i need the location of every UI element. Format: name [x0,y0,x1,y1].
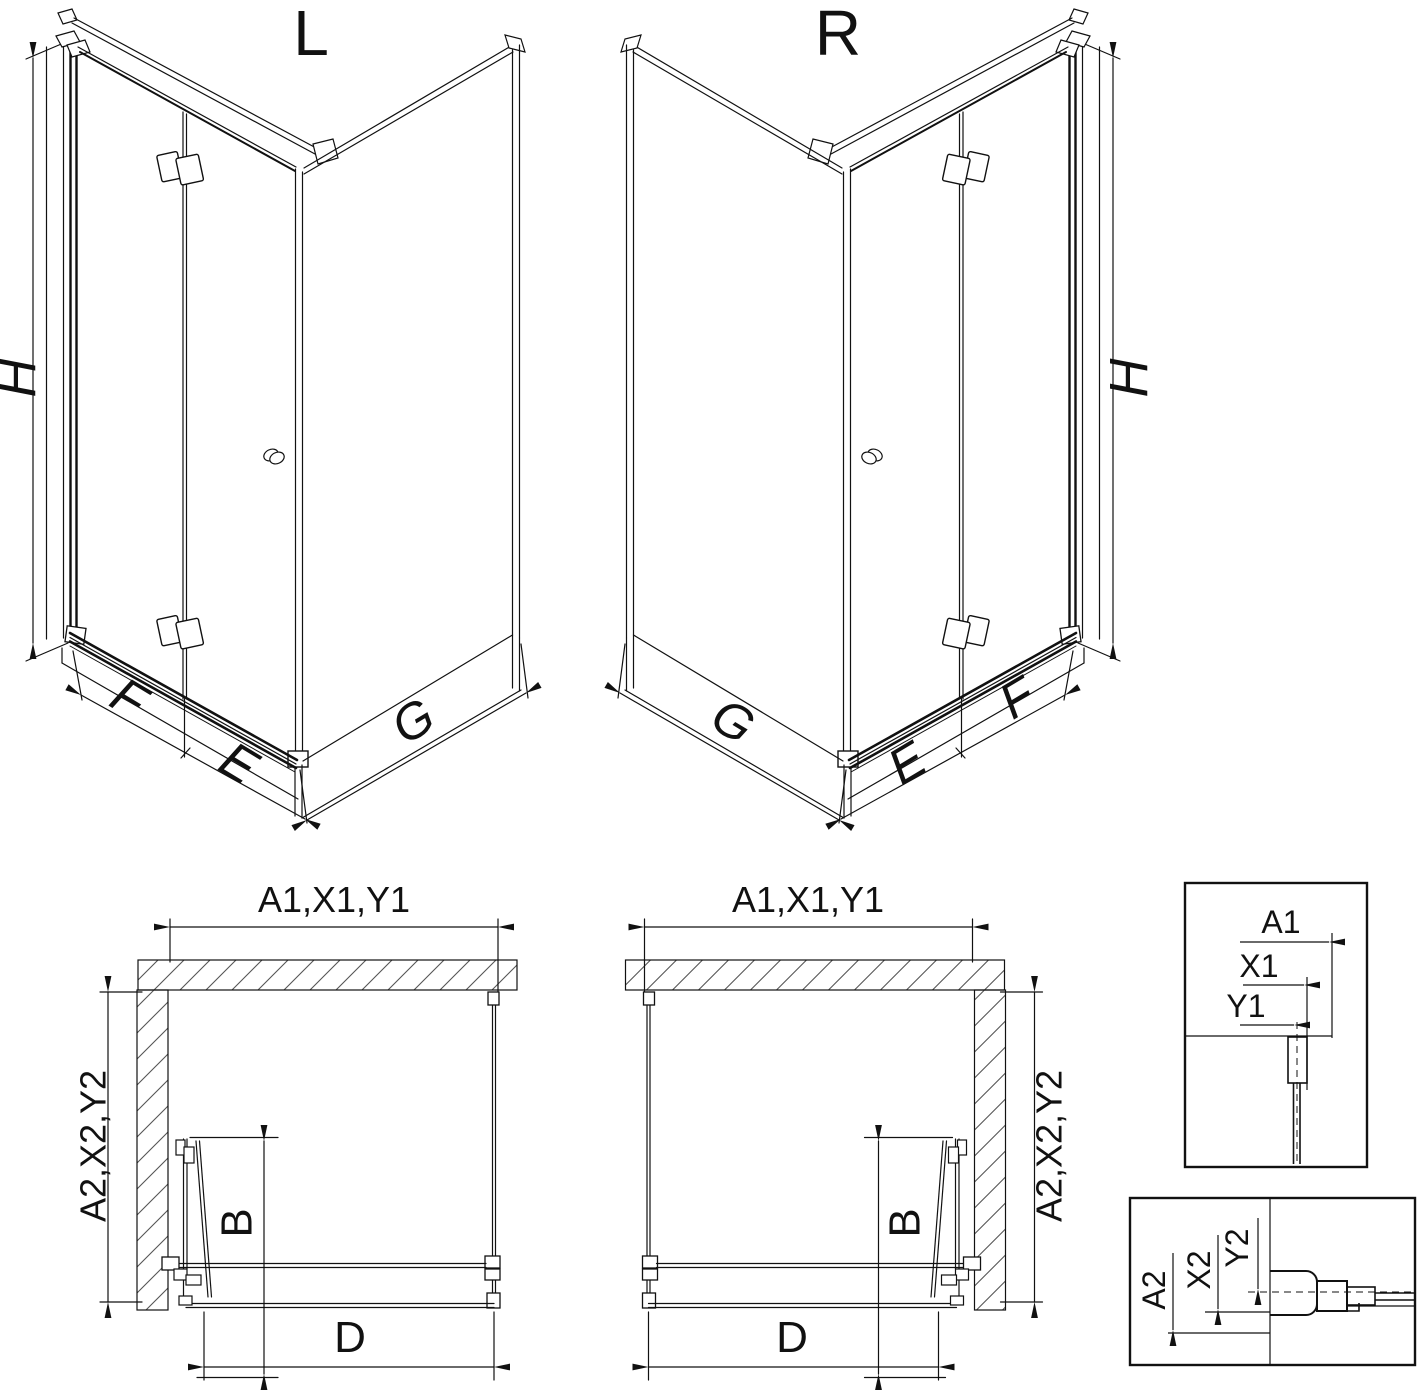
detail-label-y2: Y2 [1219,1228,1255,1267]
shower-enclosure-diagram: L H F E G R H F E G A1,X1,Y1 A2,X2,Y2 B … [0,0,1426,1397]
dim-label-depth-plan-left: A2,X2,Y2 [73,1070,114,1222]
detail-label-x2: X2 [1181,1250,1217,1289]
page-background [0,0,1426,1397]
dim-label-opening-plan-right: D [776,1313,808,1362]
detail-label-x1: X1 [1239,948,1278,984]
dim-label-opening-plan-left: D [334,1313,366,1362]
detail-label-a1: A1 [1261,904,1300,940]
detail-label-y1: Y1 [1226,988,1265,1024]
dim-label-fold-plan-left: B [213,1208,262,1237]
dim-label-h-left: H [0,358,47,398]
detail-label-a2: A2 [1136,1270,1172,1309]
dim-label-fold-plan-right: B [881,1208,930,1237]
dim-label-width-plan-right: A1,X1,Y1 [732,879,884,920]
dim-label-h-right: H [1099,358,1159,398]
label-variant-right: R [815,0,861,69]
label-variant-left: L [293,0,329,69]
technical-drawing-page: L H F E G R H F E G A1,X1,Y1 A2,X2,Y2 B … [0,0,1426,1397]
dim-label-width-plan-left: A1,X1,Y1 [258,879,410,920]
dim-label-depth-plan-right: A2,X2,Y2 [1029,1070,1070,1222]
